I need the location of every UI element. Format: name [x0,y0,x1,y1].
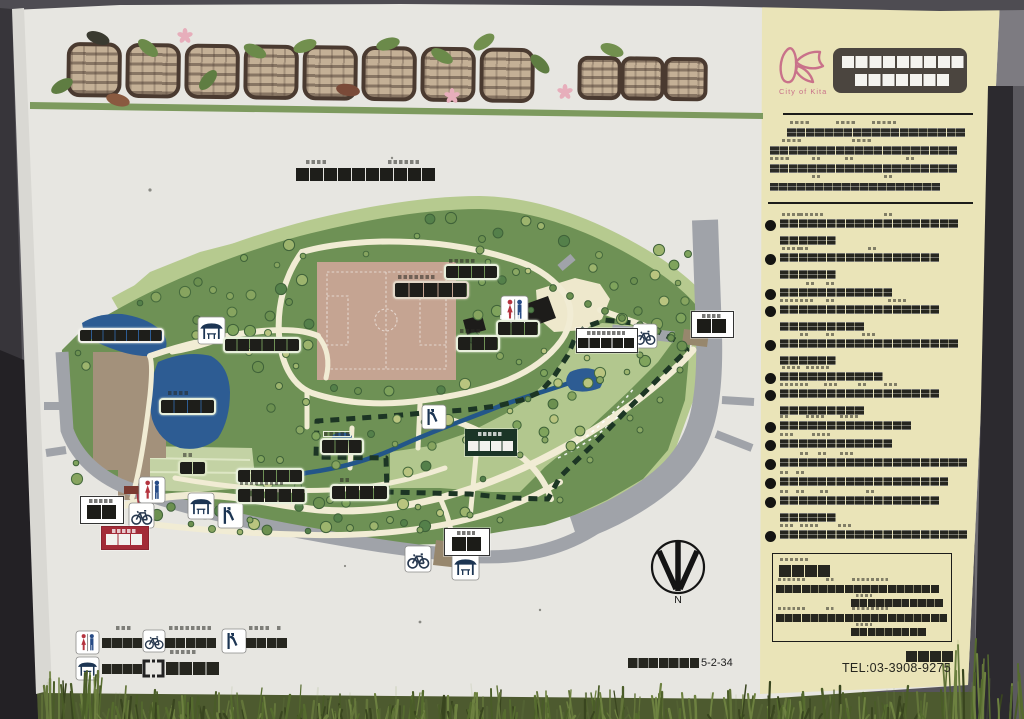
svg-text:N: N [674,594,682,606]
